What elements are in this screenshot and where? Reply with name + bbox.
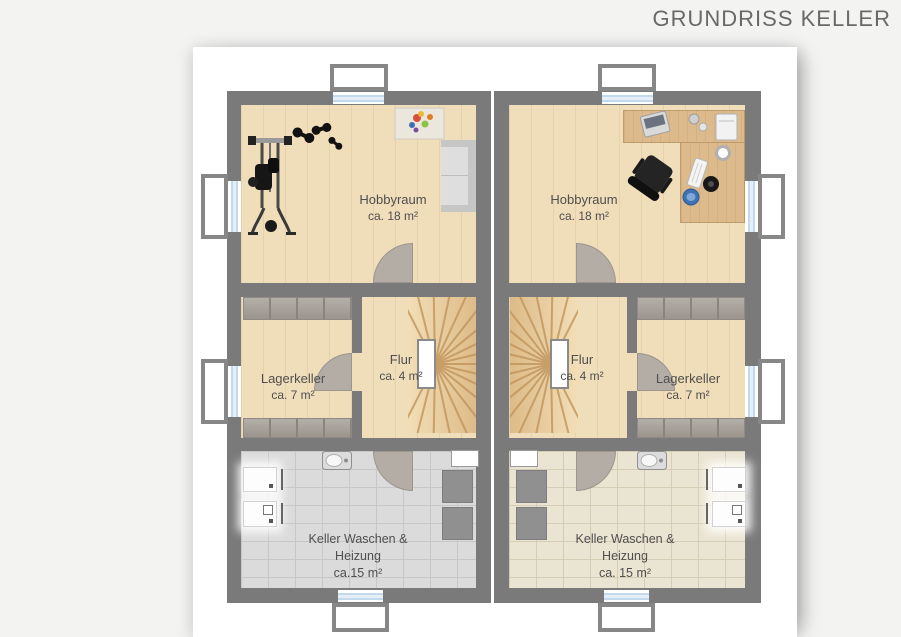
laptop [640,111,670,138]
desk-gadget [689,114,699,124]
room-label-hobbyraum-left: Hobbyraumca. 18 m² [359,192,426,224]
wall-segment [608,283,745,297]
wall-segment [509,283,576,297]
party-wall-gap [491,91,494,603]
room-label-lagerkeller-left: Lagerkellerca. 7 m² [261,371,325,403]
fitness-station [248,136,296,235]
heating-unit [442,470,473,503]
dumbbells [291,122,344,151]
storage-shelf [243,297,352,320]
desk-gadget [699,123,707,131]
room-label-laundry-left: Keller Waschen &Heizungca.15 m² [309,531,408,582]
heating-unit [516,470,547,503]
wall-segment [617,438,745,451]
door-swing-mark [281,469,283,490]
wall-segment [627,391,637,438]
window-shaft [201,174,228,239]
window-shaft [201,359,228,424]
window-shaft [598,603,655,632]
room-label-laundry-right: Keller Waschen &Heizungca. 15 m² [576,531,675,582]
window-shaft [330,64,388,91]
door-swing-mark [706,503,708,524]
wall-segment [413,283,476,297]
office-chair [625,151,677,203]
window-shaft [332,603,389,632]
heating-unit [442,507,473,540]
sofa [441,140,476,212]
room-label-flur-left: Flurca. 4 m² [379,352,422,384]
toy-shelf [395,108,444,139]
dryer [712,501,746,527]
desk-items [620,105,750,225]
window [604,590,649,602]
window [745,366,758,417]
floorplan-page: GRUNDRISS KELLER [0,0,901,637]
storage-shelf [637,418,745,438]
wall-niche [510,450,538,467]
room-label-flur-right: Flurca. 4 m² [560,352,603,384]
washing-machine [243,467,277,492]
tape-ring [717,147,730,160]
window [338,590,383,602]
wall-segment [352,391,362,438]
sink [322,451,352,470]
window-shaft [758,174,785,239]
wall-segment [352,297,362,353]
page-title: GRUNDRISS KELLER [652,6,891,32]
washing-machine [712,467,746,492]
room-label-lagerkeller-right: Lagerkellerca. 7 m² [656,371,720,403]
door-swing-mark [281,503,283,524]
wall-niche [451,450,479,467]
heating-unit [516,507,547,540]
wall-segment [627,297,637,353]
printer [716,114,737,140]
window-shaft [598,64,656,91]
storage-shelf [243,418,352,438]
room-label-hobbyraum-right: Hobbyraumca. 18 m² [550,192,617,224]
sink [637,451,667,470]
wall-segment [241,438,372,451]
wall-segment [241,283,381,297]
door-swing-mark [706,469,708,490]
window [228,181,241,232]
window [602,92,653,104]
window-shaft [758,359,785,424]
storage-shelf [637,297,745,320]
dryer [243,501,277,527]
window [228,366,241,417]
